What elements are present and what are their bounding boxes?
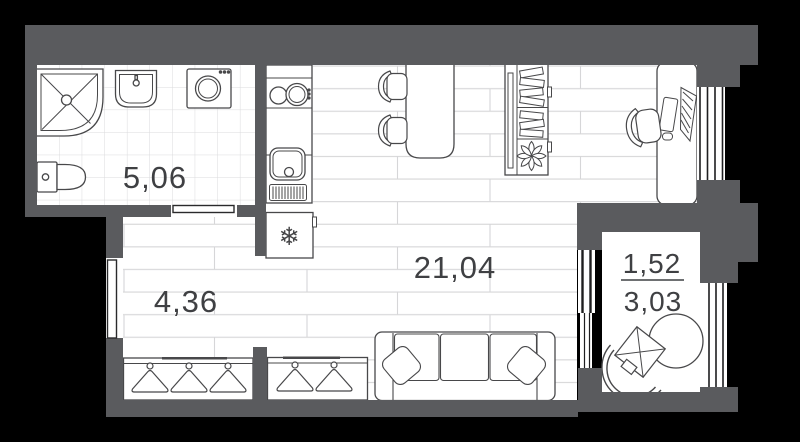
hallway-area-label: 4,36 [154,284,218,319]
wall-bathroom-left [25,65,37,217]
wall-entry-upper [106,217,123,258]
bathroom-area-label: 5,06 [123,160,187,195]
dining-chair [379,115,408,146]
balcony-side-window [706,283,727,387]
desk [657,62,697,205]
wall-above-desk-window [697,63,740,87]
tv-icon [508,73,513,168]
snowflake-icon: ❄ [279,222,300,251]
wardrobe-left [124,357,254,400]
wall-below-desk-window [697,180,740,203]
tv-shelving-unit [505,63,552,175]
wall-balcony-stub-top [577,208,602,250]
wall-balcony-stub-bottom [578,368,602,412]
bathroom-door-leaf [173,206,234,213]
living-area-label: 21,04 [414,250,497,285]
dining-table [406,63,454,158]
wall-balcony-top [577,203,758,232]
washing-machine-icon [187,69,231,108]
balcony-reduced-area-label: 1,52 [623,248,682,279]
floor-plan-svg: 5,06 4,36 21,04 1,52 3,03 ❄ [0,0,800,442]
kitchen-counter [266,65,312,203]
stove-icon [270,84,310,106]
wardrobe-right [268,357,368,401]
entry-door-leaf [108,260,117,338]
shower-icon [36,69,103,136]
wall-bottom [106,400,578,417]
plant-icon [517,142,546,171]
toilet-icon [37,162,86,192]
wall-top [25,25,758,65]
wall-right-block-b [700,262,738,283]
balcony-full-area-label: 3,03 [624,286,683,317]
desk-window [697,87,725,180]
floor-plan-canvas: 5,06 4,36 21,04 1,52 3,03 ❄ [0,0,800,442]
wall-wardrobe-divider [253,347,267,400]
wall-balcony-bottom-right [700,387,738,412]
wall-kitchen-divider [255,65,266,256]
wall-bathroom-bottom-left [25,205,171,217]
wall-right-block-a [700,232,758,262]
kitchen-sink-icon [270,148,307,201]
dining-chair [379,71,408,102]
mouse-icon [663,133,673,140]
washbasin-icon [116,71,157,108]
sofa [375,332,555,401]
